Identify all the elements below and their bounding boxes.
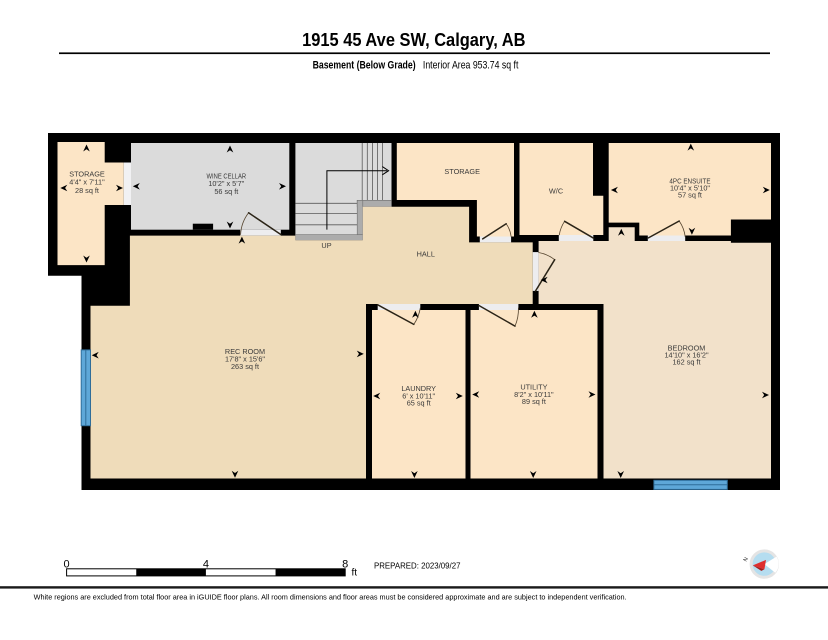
svg-text:Interior Area 953.74 sq ft: Interior Area 953.74 sq ft <box>423 60 519 72</box>
svg-text:162 sq ft: 162 sq ft <box>673 358 701 367</box>
svg-text:White regions are excluded fro: White regions are excluded from total fl… <box>34 592 627 601</box>
svg-text:W/C: W/C <box>549 186 563 195</box>
svg-text:Basement (Below Grade): Basement (Below Grade) <box>313 60 416 72</box>
svg-text:PREPARED: 2023/09/27: PREPARED: 2023/09/27 <box>374 562 461 571</box>
svg-text:89 sq ft: 89 sq ft <box>522 397 546 406</box>
svg-text:28 sq ft: 28 sq ft <box>75 186 99 195</box>
svg-text:1915 45 Ave SW, Calgary, AB: 1915 45 Ave SW, Calgary, AB <box>302 30 525 50</box>
svg-text:UP: UP <box>321 241 331 250</box>
svg-text:STORAGE: STORAGE <box>444 167 480 176</box>
svg-text:65 sq ft: 65 sq ft <box>407 399 431 408</box>
svg-text:ft: ft <box>352 568 358 579</box>
svg-text:57 sq ft: 57 sq ft <box>678 191 702 200</box>
svg-text:263 sq ft: 263 sq ft <box>231 362 259 371</box>
svg-text:HALL: HALL <box>417 249 435 258</box>
svg-text:56 sq ft: 56 sq ft <box>214 187 238 196</box>
